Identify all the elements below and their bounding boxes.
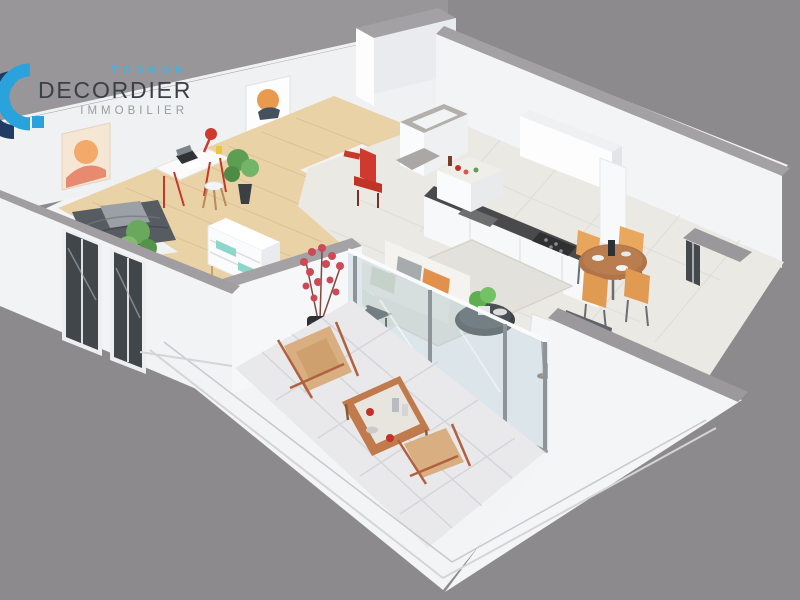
bedroom-window-2	[110, 248, 146, 374]
bedroom-window-1	[62, 228, 102, 356]
floor-plan-screenshot: THONON DECORDIER IMMOBILIER	[0, 0, 800, 600]
apartment-3d-scene	[0, 0, 800, 600]
red-desk-lamp	[205, 128, 217, 140]
